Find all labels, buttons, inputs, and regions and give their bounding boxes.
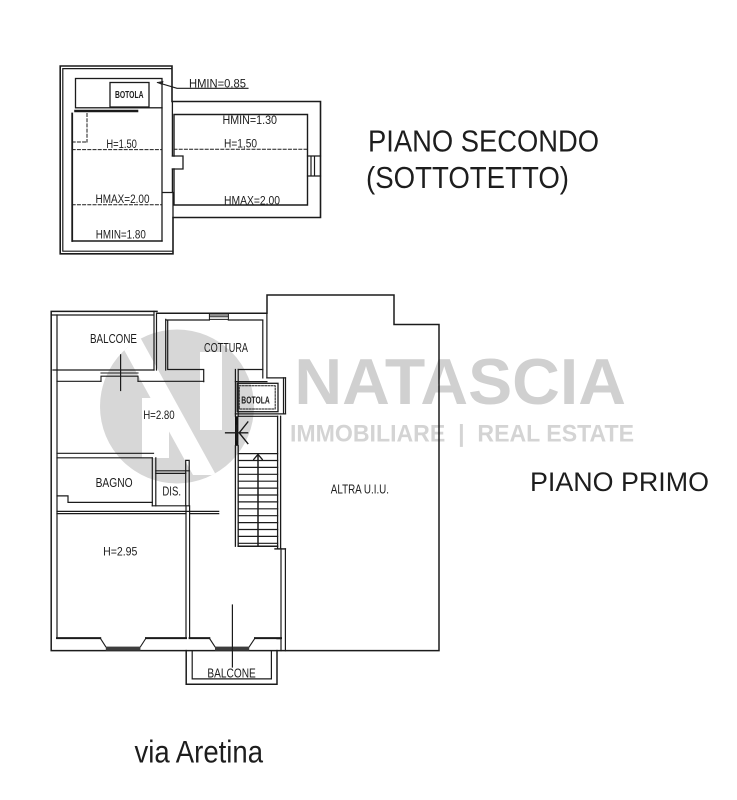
svg-text:HMIN=1.80: HMIN=1.80: [96, 230, 146, 242]
svg-text:HMAX=2.00: HMAX=2.00: [224, 195, 280, 207]
svg-text:COTTURA: COTTURA: [204, 341, 248, 355]
svg-text:BOTOLA: BOTOLA: [241, 396, 269, 407]
svg-text:PIANO PRIMO: PIANO PRIMO: [530, 467, 709, 497]
svg-text:via Aretina: via Aretina: [135, 734, 264, 770]
svg-text:BALCONE: BALCONE: [90, 332, 137, 346]
svg-text:HMAX=2.00: HMAX=2.00: [96, 194, 150, 206]
svg-text:H=1.50: H=1.50: [106, 139, 136, 151]
svg-text:H=2.95: H=2.95: [103, 544, 138, 558]
svg-text:BOTOLA: BOTOLA: [115, 90, 144, 101]
svg-text:PIANO SECONDO: PIANO SECONDO: [368, 124, 599, 159]
svg-text:DIS.: DIS.: [162, 485, 181, 499]
svg-text:NATASCIA: NATASCIA: [294, 345, 626, 418]
svg-text:BALCONE: BALCONE: [207, 667, 255, 681]
svg-text:(SOTTOTETTO): (SOTTOTETTO): [366, 160, 569, 195]
svg-text:H=1,50: H=1,50: [224, 139, 257, 151]
svg-text:HMIN=0.85: HMIN=0.85: [189, 79, 246, 91]
svg-text:BAGNO: BAGNO: [96, 476, 133, 490]
svg-text:ALTRA U.I.U.: ALTRA U.I.U.: [331, 483, 389, 497]
svg-text:H=2.80: H=2.80: [143, 408, 175, 422]
svg-text:IMMOBILIARE | REAL ESTATE: IMMOBILIARE | REAL ESTATE: [290, 421, 634, 448]
svg-text:HMIN=1.30: HMIN=1.30: [223, 115, 278, 127]
